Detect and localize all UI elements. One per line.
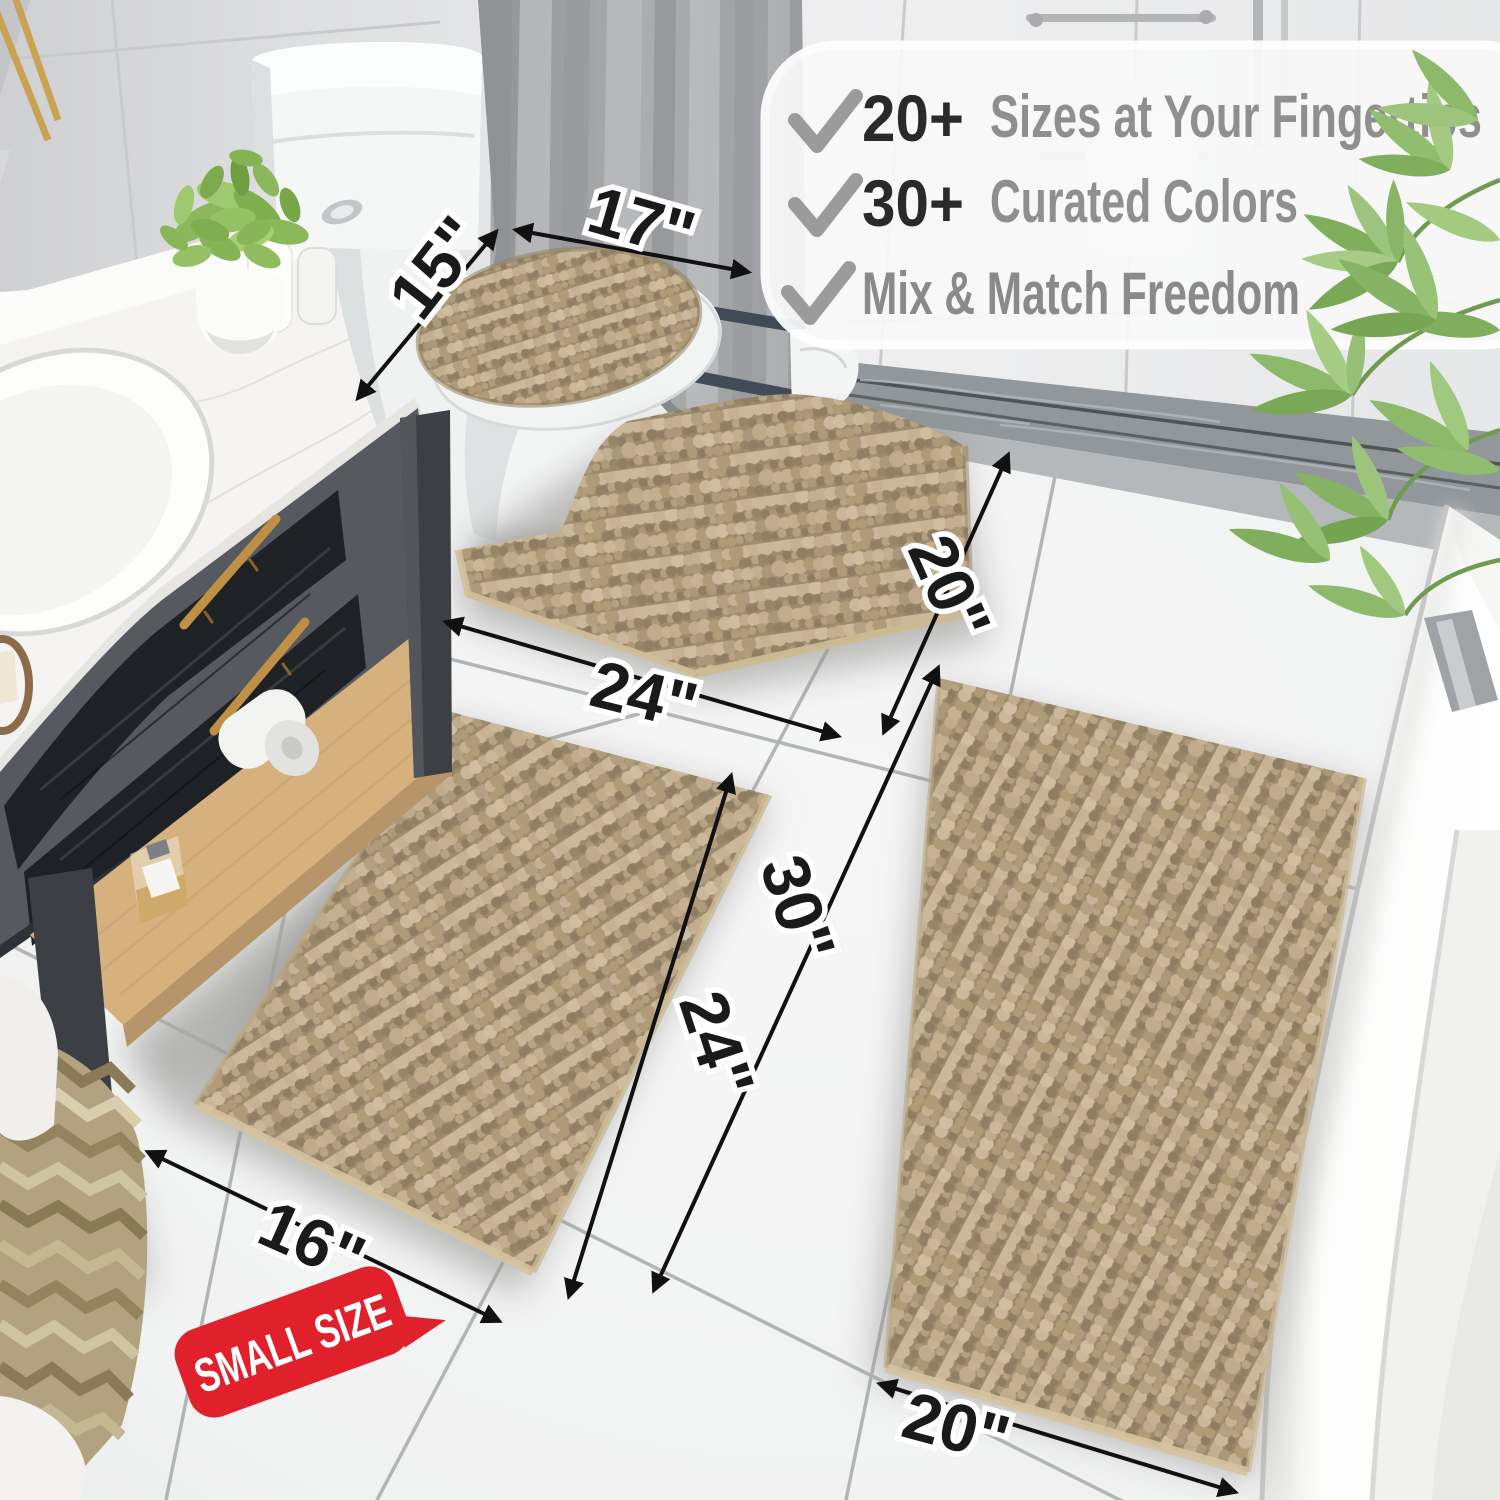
svg-text:Mix & Match Freedom: Mix & Match Freedom: [862, 260, 1300, 327]
svg-text:30+: 30+: [862, 166, 964, 240]
svg-text:Curated Colors: Curated Colors: [990, 168, 1298, 235]
svg-text:20+: 20+: [862, 81, 964, 155]
